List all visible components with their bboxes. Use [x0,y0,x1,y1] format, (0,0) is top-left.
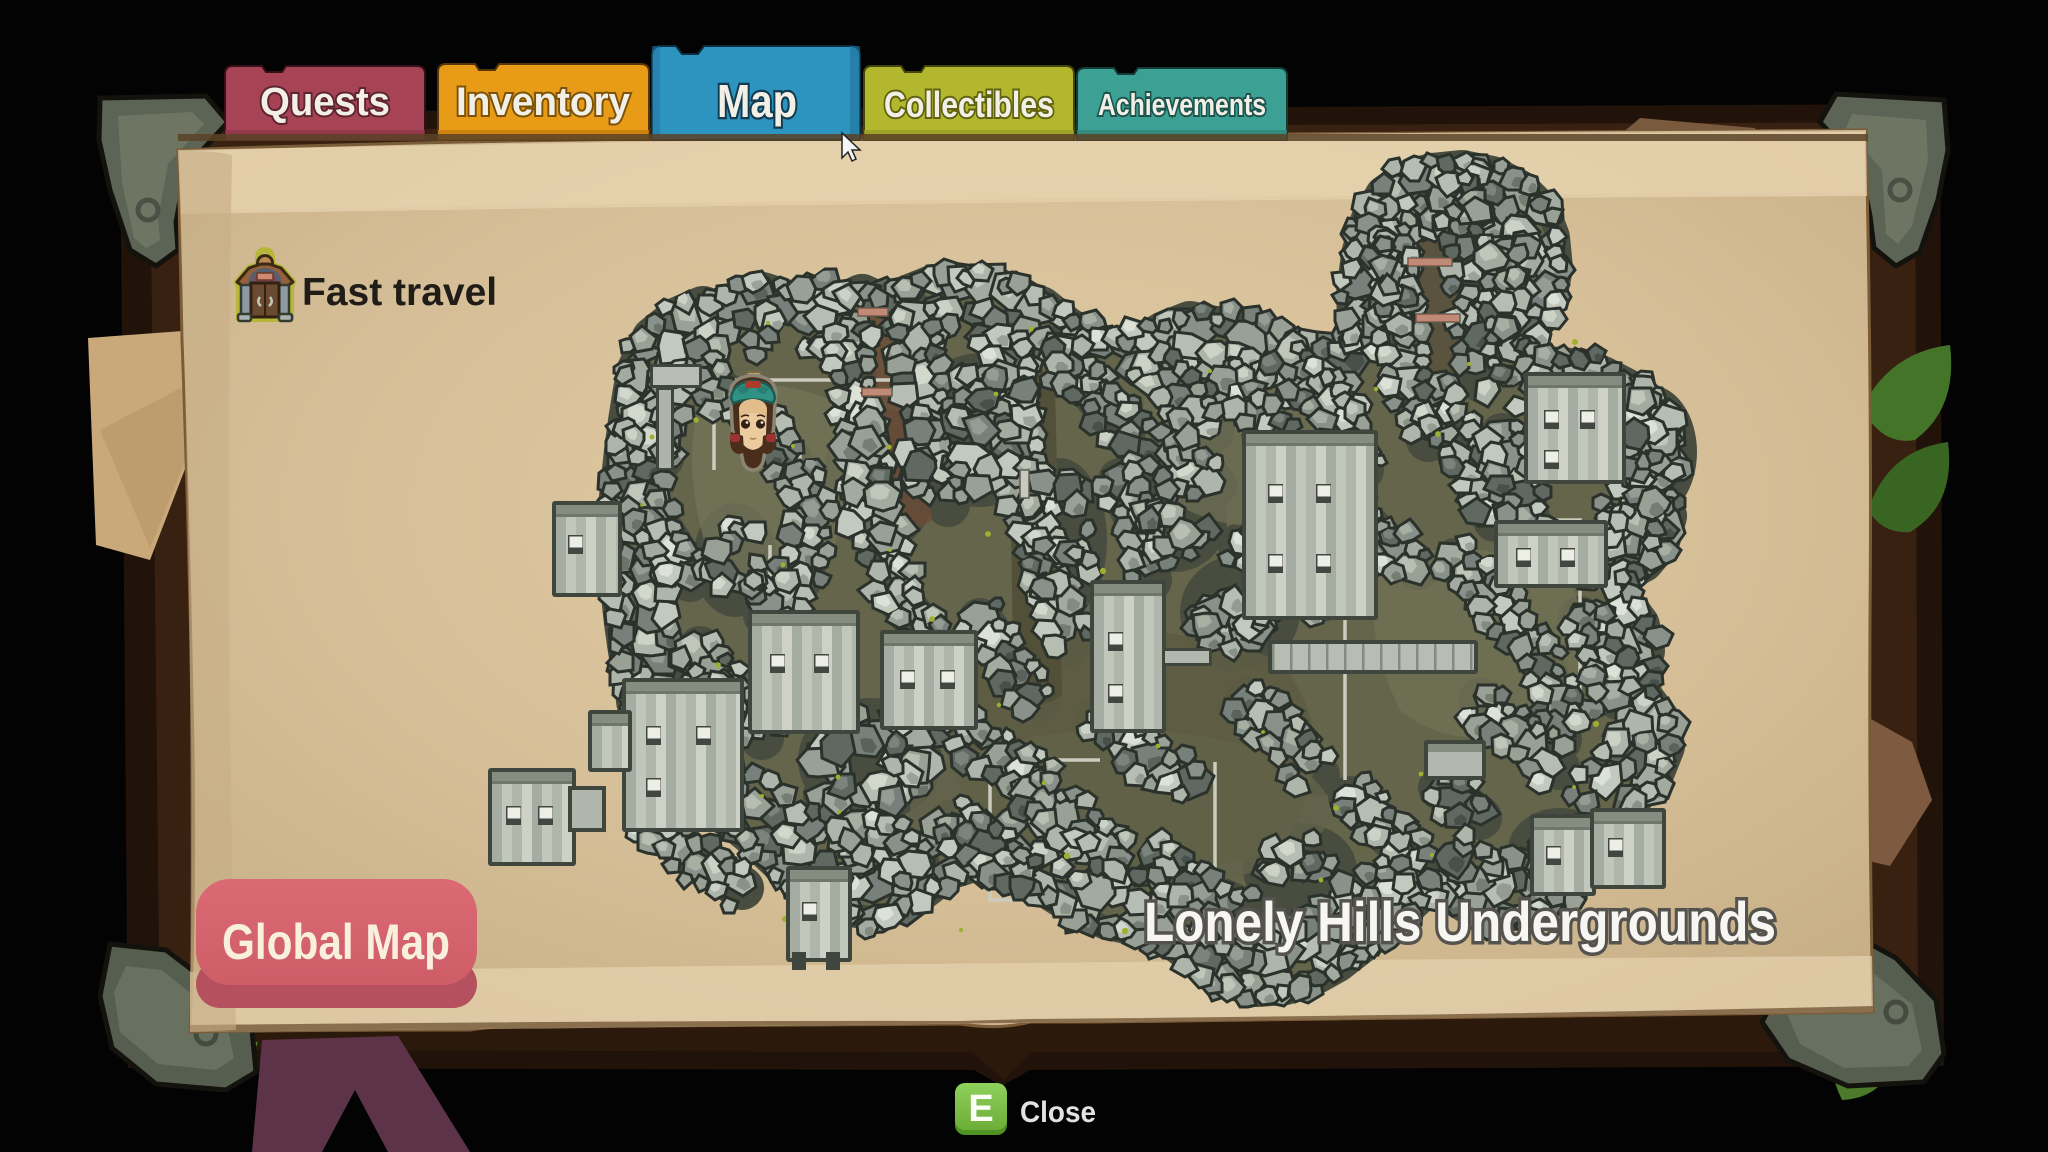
svg-text:Lonely Hills Undergrounds: Lonely Hills Undergrounds [1144,890,1776,953]
svg-text:Global Map: Global Map [222,914,450,970]
svg-text:Quests: Quests [260,80,390,124]
svg-text:Inventory: Inventory [456,80,631,124]
svg-text:Close: Close [1020,1096,1096,1129]
svg-text:E: E [968,1088,993,1130]
svg-text:Achievements: Achievements [1098,87,1266,122]
svg-text:Fast travel: Fast travel [302,271,497,314]
svg-text:Map: Map [717,75,797,127]
svg-text:Collectibles: Collectibles [884,84,1054,125]
